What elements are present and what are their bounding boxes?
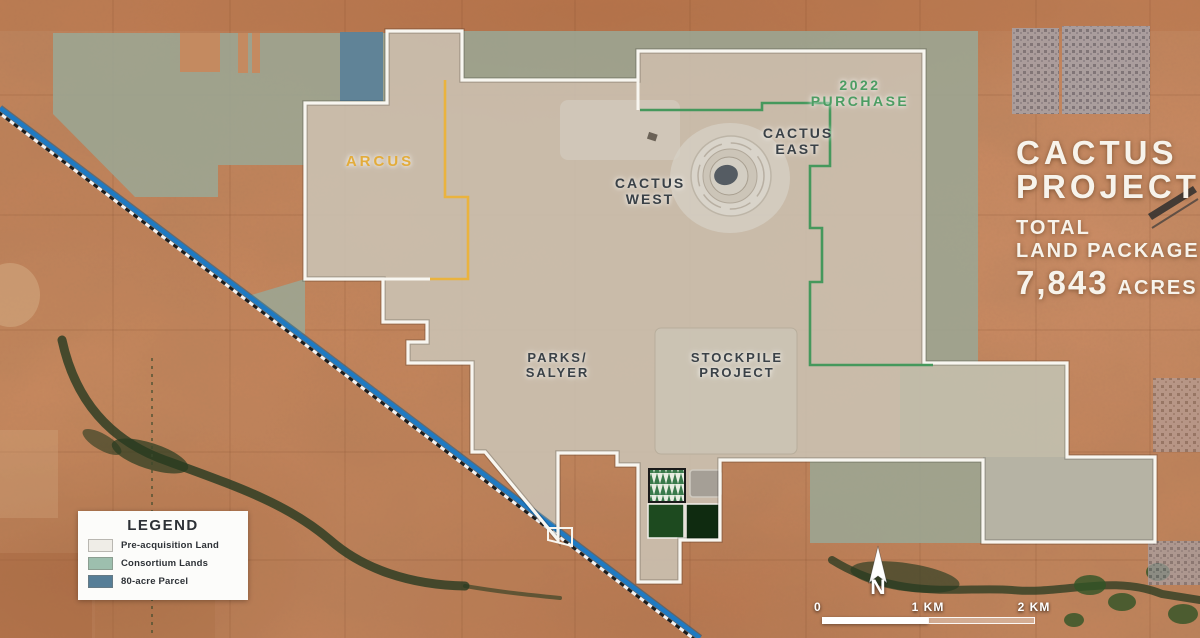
legend-label: Pre-acquisition Land (121, 540, 219, 551)
subtitle-total: TOTAL (1016, 217, 1200, 239)
acreage: 7,843 ACRES (1016, 264, 1200, 302)
consortium-notches (180, 33, 260, 73)
label-2022-purchase: 2022 PURCHASE (790, 78, 930, 110)
north-desert-strip (0, 0, 1200, 31)
scale-bar-segment-solid (822, 617, 928, 624)
interior-southeast-block (983, 457, 1155, 542)
urban-area-southeast (1148, 541, 1200, 585)
scale-tick-0: 0 (814, 600, 822, 614)
label-stockpile-line1: STOCKPILE (682, 351, 792, 366)
label-stockpile-project: STOCKPILE PROJECT (682, 351, 792, 380)
crop-fields (648, 469, 721, 540)
legend-label: Consortium Lands (121, 558, 208, 569)
parcel-80-acre (340, 32, 383, 101)
interior-east-block (900, 363, 1067, 457)
scale-tick-2km: 2 KM (1006, 600, 1062, 614)
legend-swatch-80-acre (88, 575, 113, 588)
project-title-line2: PROJECT (1016, 170, 1200, 204)
field-dark-green (686, 504, 719, 540)
stockpile-pad (655, 328, 797, 454)
urban-area-northeast-1 (1012, 28, 1059, 114)
label-cactus-west-line1: CACTUS (600, 176, 700, 192)
acreage-unit: ACRES (1118, 277, 1198, 300)
legend-item-80-acre: 80-acre Parcel (88, 575, 248, 588)
legend-swatch-consortium (88, 557, 113, 570)
field-striped (649, 469, 685, 502)
legend-item-pre-acquisition: Pre-acquisition Land (88, 539, 248, 552)
label-cactus-east-line2: EAST (752, 142, 844, 158)
legend-item-consortium: Consortium Lands (88, 557, 248, 570)
label-cactus-west: CACTUS WEST (600, 176, 700, 208)
label-stockpile-line2: PROJECT (682, 366, 792, 381)
legend: LEGEND Pre-acquisition Land Consortium L… (78, 511, 248, 600)
label-cactus-east-line1: CACTUS (752, 126, 844, 142)
label-arcus: ARCUS (340, 154, 420, 171)
label-parks-salyer-line1: PARKS/ (510, 351, 605, 366)
legend-swatch-pre-acquisition (88, 539, 113, 552)
urban-area-northeast-2 (1062, 26, 1150, 114)
scale-bar-segment-open (928, 617, 1035, 624)
project-title-line1: CACTUS (1016, 136, 1200, 170)
consortium-south-band (810, 460, 983, 543)
north-label: N (862, 576, 894, 600)
label-cactus-east: CACTUS EAST (752, 126, 844, 158)
field-fallow (690, 470, 721, 497)
label-parks-salyer: PARKS/ SALYER (510, 351, 605, 380)
label-parks-salyer-line2: SALYER (510, 366, 605, 381)
acreage-number: 7,843 (1016, 264, 1109, 302)
subtitle-land-package: LAND PACKAGE (1016, 240, 1200, 262)
label-cactus-west-line2: WEST (600, 192, 700, 208)
suburb-east (1153, 378, 1200, 452)
legend-title: LEGEND (78, 517, 248, 534)
legend-label: 80-acre Parcel (121, 576, 188, 587)
map-canvas: ARCUS 2022 PURCHASE CACTUS WEST CACTUS E… (0, 0, 1200, 638)
scale-tick-1km: 1 KM (900, 600, 956, 614)
field-green (648, 504, 684, 538)
title-block: CACTUS PROJECT TOTAL LAND PACKAGE 7,843 … (1016, 136, 1200, 302)
